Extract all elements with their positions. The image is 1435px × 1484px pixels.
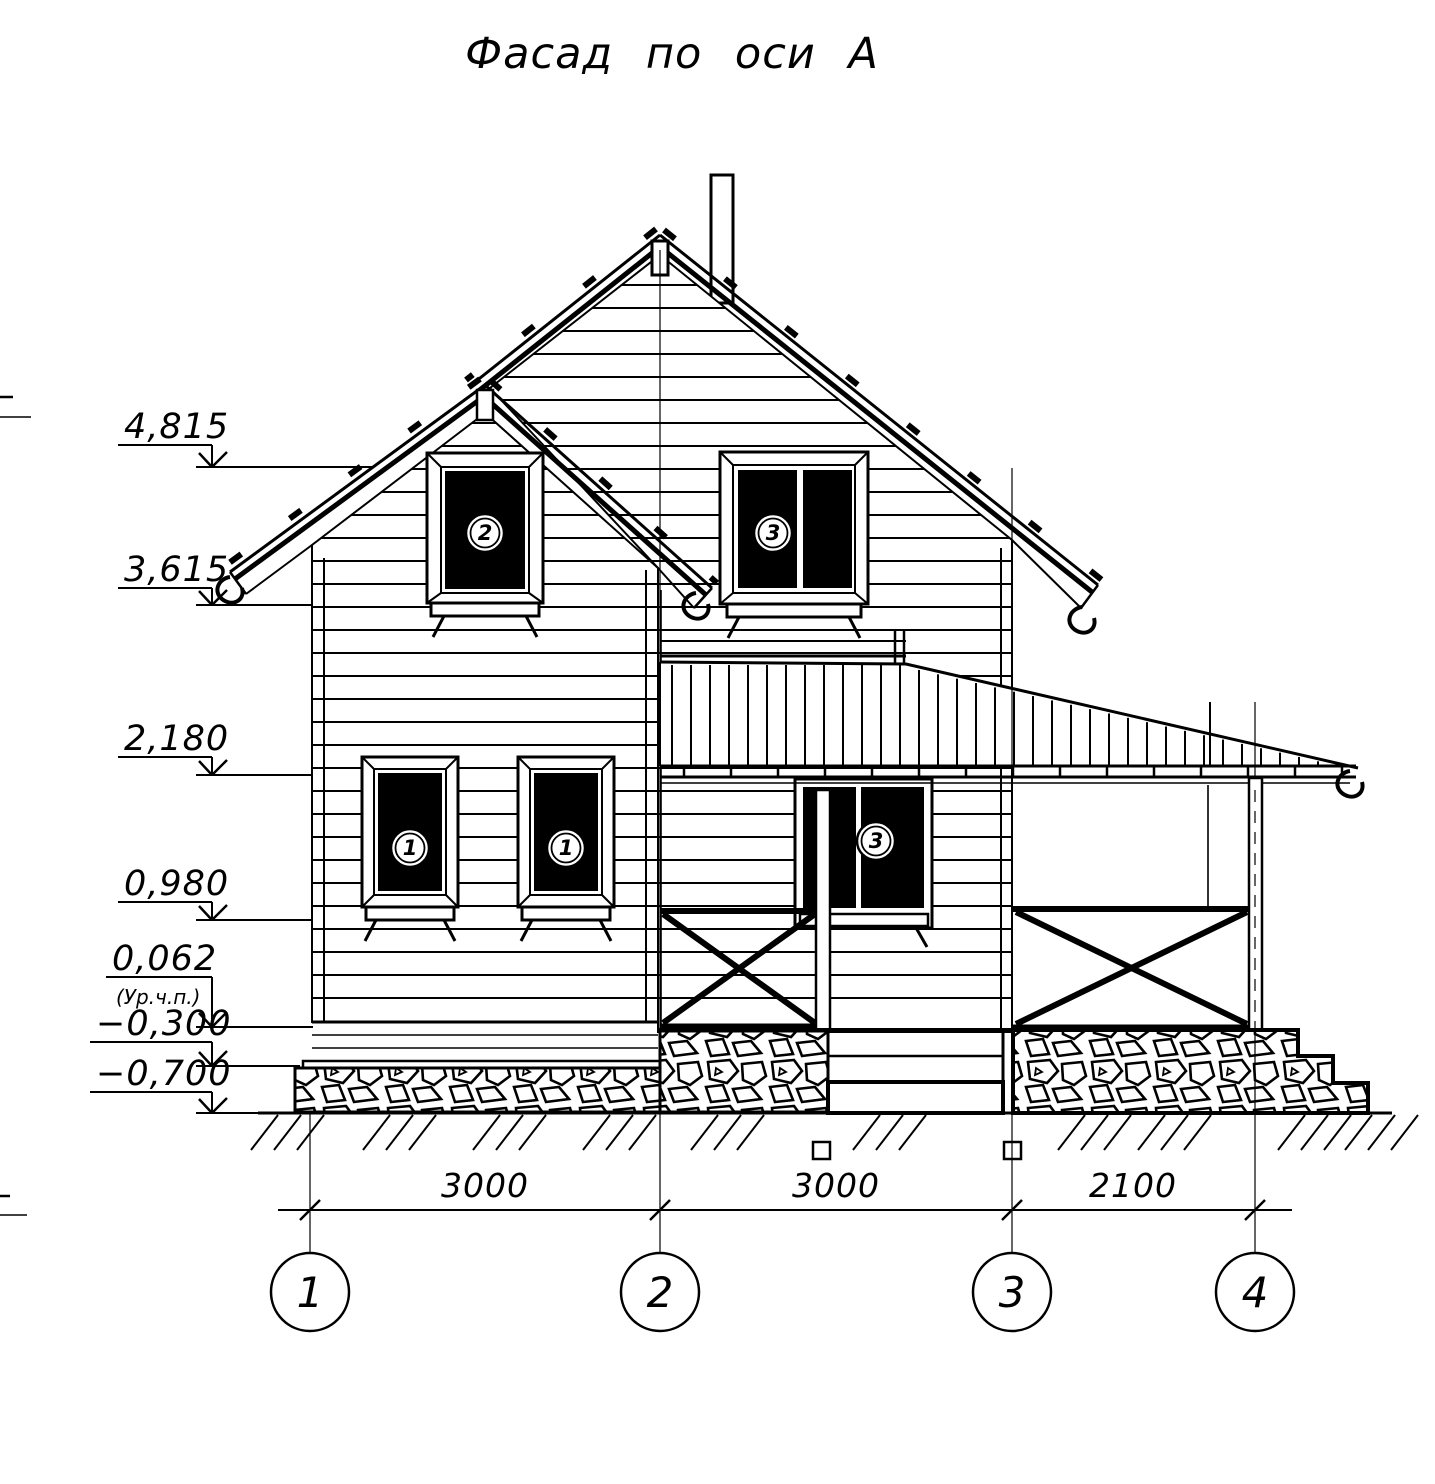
axis-bubbles: 1 2 3 4 <box>271 1253 1294 1331</box>
ground-hatch-stroke <box>629 1115 656 1150</box>
dimension-line-group: 3000 3000 2100 <box>278 1166 1292 1220</box>
ground-hatch-stroke <box>274 1115 301 1150</box>
window-sill <box>366 907 454 920</box>
window-mark: 2 <box>466 514 504 552</box>
dimension-value: 3000 <box>792 1166 880 1205</box>
ground-hatch-stroke <box>1324 1115 1351 1150</box>
ground-hatch-stroke <box>737 1115 764 1150</box>
gutter-icon <box>1337 771 1362 797</box>
ground-hatch-stroke <box>473 1115 500 1150</box>
level-marker: 2,180 <box>118 719 313 775</box>
ground-hatch-stroke <box>251 1115 278 1150</box>
level-value: −0,700 <box>96 1054 232 1094</box>
facade-drawing-sheet: Фасад по оси А <box>0 0 1435 1484</box>
axis-label: 3 <box>999 1268 1026 1317</box>
facade-drawing: Фасад по оси А <box>0 0 1435 1484</box>
level-marker: 0,980 <box>118 864 313 920</box>
ground-hatch-stroke <box>1161 1115 1188 1150</box>
ground-hatch-stroke <box>714 1115 741 1150</box>
window-mark-label: 1 <box>403 836 418 860</box>
axis-bubble: 2 <box>621 1253 699 1331</box>
ground-hatch-stroke <box>876 1115 903 1150</box>
level-marker: 4,815 <box>118 407 374 467</box>
railing-x-brace-right <box>1013 909 1250 1027</box>
ground-hatch-stroke <box>1081 1115 1108 1150</box>
window-mark: 1 <box>391 829 429 867</box>
ground-hatch-stroke <box>1301 1115 1328 1150</box>
level-value: 2,180 <box>124 719 229 759</box>
entrance-steps <box>828 1030 1003 1113</box>
window-mark: 3 <box>857 822 895 860</box>
foundation-left <box>295 1068 660 1112</box>
axis-bubble: 4 <box>1216 1253 1294 1331</box>
axis-bubble: 1 <box>271 1253 349 1331</box>
ground-hatch-stroke <box>1345 1115 1372 1150</box>
drawing-title: Фасад по оси А <box>465 29 879 79</box>
axis-bubble: 3 <box>973 1253 1051 1331</box>
ground-hatch-stroke <box>1058 1115 1085 1150</box>
ground-hatch-stroke <box>1368 1115 1395 1150</box>
post-footing <box>813 1142 830 1159</box>
gable-finial <box>477 390 493 420</box>
window-mark-label: 3 <box>766 521 781 545</box>
ground-hatch-stroke <box>409 1115 436 1150</box>
ground-hatch-stroke <box>1184 1115 1211 1150</box>
ground-hatch-stroke <box>583 1115 610 1150</box>
ground-hatch-stroke <box>606 1115 633 1150</box>
dimension-value: 3000 <box>441 1166 529 1205</box>
window-mark-label: 3 <box>869 829 884 853</box>
axis-label: 1 <box>297 1268 324 1317</box>
window-mark-label: 2 <box>478 521 493 545</box>
ground-hatch <box>251 1115 1418 1150</box>
ground-hatch-stroke <box>1104 1115 1131 1150</box>
dimension-value: 2100 <box>1089 1166 1177 1205</box>
window-mark: 1 <box>547 829 585 867</box>
window-sill <box>522 907 610 920</box>
level-value: 0,980 <box>124 864 229 904</box>
ground-hatch-stroke <box>899 1115 926 1150</box>
porch-post <box>816 790 830 1030</box>
window-attic-right <box>720 452 868 638</box>
level-marker: 3,615 <box>118 550 313 605</box>
axis-label: 2 <box>647 1268 674 1317</box>
foundation-right-steps <box>1013 1030 1368 1113</box>
ground-hatch-stroke <box>496 1115 523 1150</box>
ground-hatch-stroke <box>1278 1115 1305 1150</box>
window-glass <box>803 470 852 588</box>
level-value: 0,062 <box>112 939 217 979</box>
axis-label: 4 <box>1242 1268 1269 1317</box>
ground-hatch-stroke <box>386 1115 413 1150</box>
house-drawing: 2 3 1 1 3 <box>217 175 1418 1159</box>
level-marker: −0,700 <box>90 1054 258 1113</box>
window-mark-label: 1 <box>559 836 574 860</box>
ground-hatch-stroke <box>519 1115 546 1150</box>
ground-hatch-stroke <box>1391 1115 1418 1150</box>
foundation <box>251 1022 1418 1159</box>
gutter-icon <box>1069 607 1094 633</box>
sheet-edge-marks <box>0 397 31 1215</box>
window-mark: 3 <box>754 514 792 552</box>
ground-hatch-stroke <box>363 1115 390 1150</box>
ground-hatch-stroke <box>1138 1115 1165 1150</box>
level-value: 3,615 <box>124 550 229 590</box>
ground-hatch-stroke <box>853 1115 880 1150</box>
foundation-middle <box>660 1031 828 1112</box>
level-value: 4,815 <box>124 407 229 447</box>
level-value: −0,300 <box>96 1004 232 1044</box>
window-sill <box>431 603 539 616</box>
ground-hatch-stroke <box>691 1115 718 1150</box>
window-sill <box>727 604 861 617</box>
